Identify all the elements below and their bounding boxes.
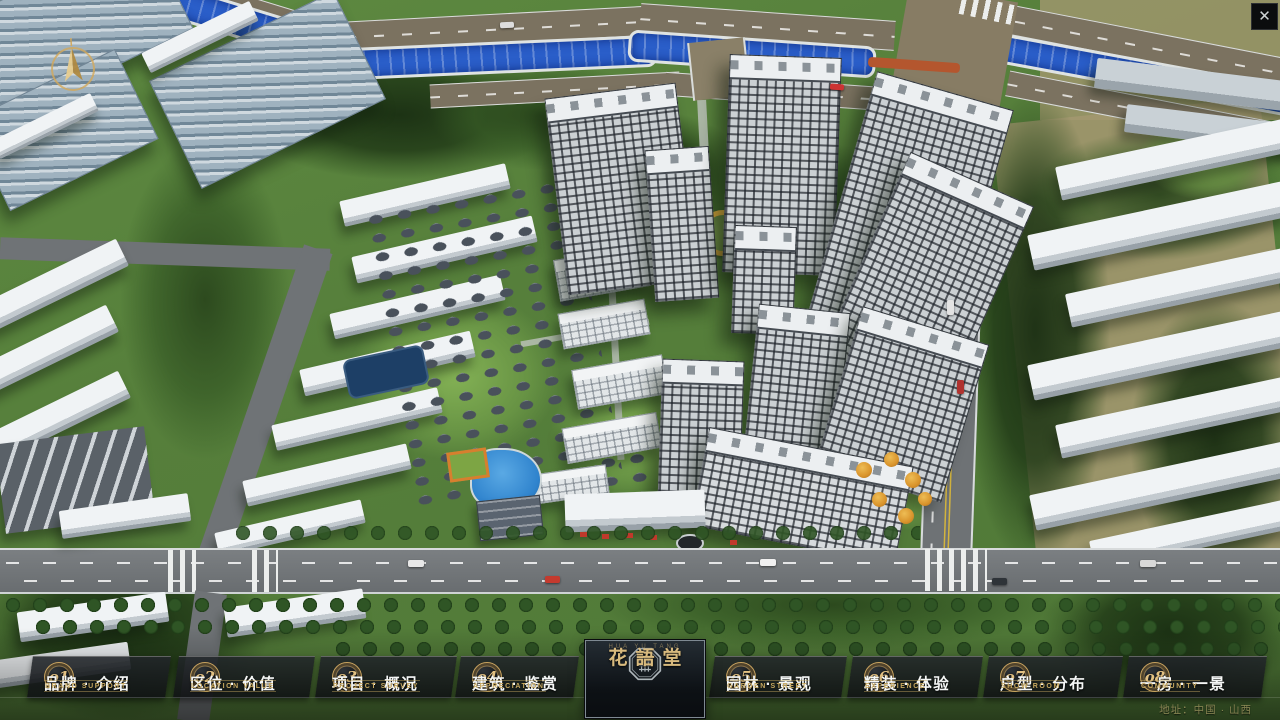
project-address: 地址：中国 · 山西 — [1159, 702, 1252, 717]
nav-label-en: LOCATION VALUE — [190, 680, 276, 692]
nav-item-interior[interactable]: o6 精装 · 体验EXPERIENCE — [847, 656, 983, 698]
close-button[interactable]: ✕ — [1251, 3, 1278, 30]
car — [947, 300, 954, 315]
nav-item-garden[interactable]: o5 园林 · 景观GARDEN STREET — [709, 656, 847, 698]
project-logo-panel: 花語堂 HUA YU TANG — [585, 640, 705, 718]
car — [545, 576, 560, 583]
car — [830, 84, 844, 91]
nav-item-content: o1 品牌 · 介绍BRAND SUPPORT — [30, 657, 168, 697]
nav-label-en: EXPERIENCE — [864, 680, 927, 692]
nav-label-en: APPRECIATION — [472, 680, 546, 692]
row-house — [242, 443, 412, 506]
car — [500, 22, 514, 29]
nav-label-en: SHOW ROOM — [1000, 680, 1062, 692]
orange-tree — [872, 492, 887, 507]
nav-item-architecture[interactable]: o4 建筑 · 鉴赏APPRECIATION — [455, 656, 579, 698]
car — [408, 560, 424, 567]
pavilion — [446, 447, 490, 482]
crosswalk — [252, 550, 278, 592]
orange-tree — [905, 472, 921, 488]
residential-tower — [645, 146, 719, 302]
orange-tree — [918, 492, 932, 506]
aerial-masterplan-view: ✕ o1 品牌 · 介绍BRAND SUPPORT o2 区位 · 价值LOCA… — [0, 0, 1280, 720]
nav-item-content: o8 一房 · 一景COMMUNITY — [1126, 657, 1264, 697]
nav-item-content: o4 建筑 · 鉴赏APPRECIATION — [458, 657, 576, 697]
project-name-latin: HUA YU TANG — [608, 644, 681, 650]
orange-tree — [884, 452, 899, 467]
nav-item-community[interactable]: o8 一房 · 一景COMMUNITY — [1123, 656, 1267, 698]
crosswalk — [925, 549, 987, 591]
nav-label-en: PROJECT SURVEY — [332, 680, 420, 692]
orange-tree — [856, 462, 872, 478]
car — [957, 380, 964, 394]
compass-icon — [42, 36, 104, 102]
nav-label-en: COMMUNITY — [1140, 680, 1200, 692]
nav-item-project[interactable]: o3 项目 · 概况PROJECT SURVEY — [315, 656, 457, 698]
crosswalk — [168, 550, 196, 592]
nav-item-content: o7 户型 · 分布SHOW ROOM — [986, 657, 1120, 697]
street-trees — [230, 520, 920, 546]
nav-item-content: o2 区位 · 价值LOCATION VALUE — [176, 657, 312, 697]
nav-label-en: GARDEN STREET — [726, 680, 809, 692]
nav-item-brand[interactable]: o1 品牌 · 介绍BRAND SUPPORT — [27, 656, 171, 698]
car — [992, 578, 1007, 585]
orange-tree — [898, 508, 914, 524]
nav-item-content: o6 精装 · 体验EXPERIENCE — [850, 657, 980, 697]
car — [1140, 560, 1156, 567]
nav-label-en: BRAND SUPPORT — [44, 680, 128, 692]
car — [760, 559, 776, 566]
nav-item-location[interactable]: o2 区位 · 价值LOCATION VALUE — [173, 656, 315, 698]
nav-item-content: o3 项目 · 概况PROJECT SURVEY — [318, 657, 454, 697]
nav-item-content: o5 园林 · 景观GARDEN STREET — [712, 657, 844, 697]
nav-item-floorplan[interactable]: o7 户型 · 分布SHOW ROOM — [983, 656, 1123, 698]
